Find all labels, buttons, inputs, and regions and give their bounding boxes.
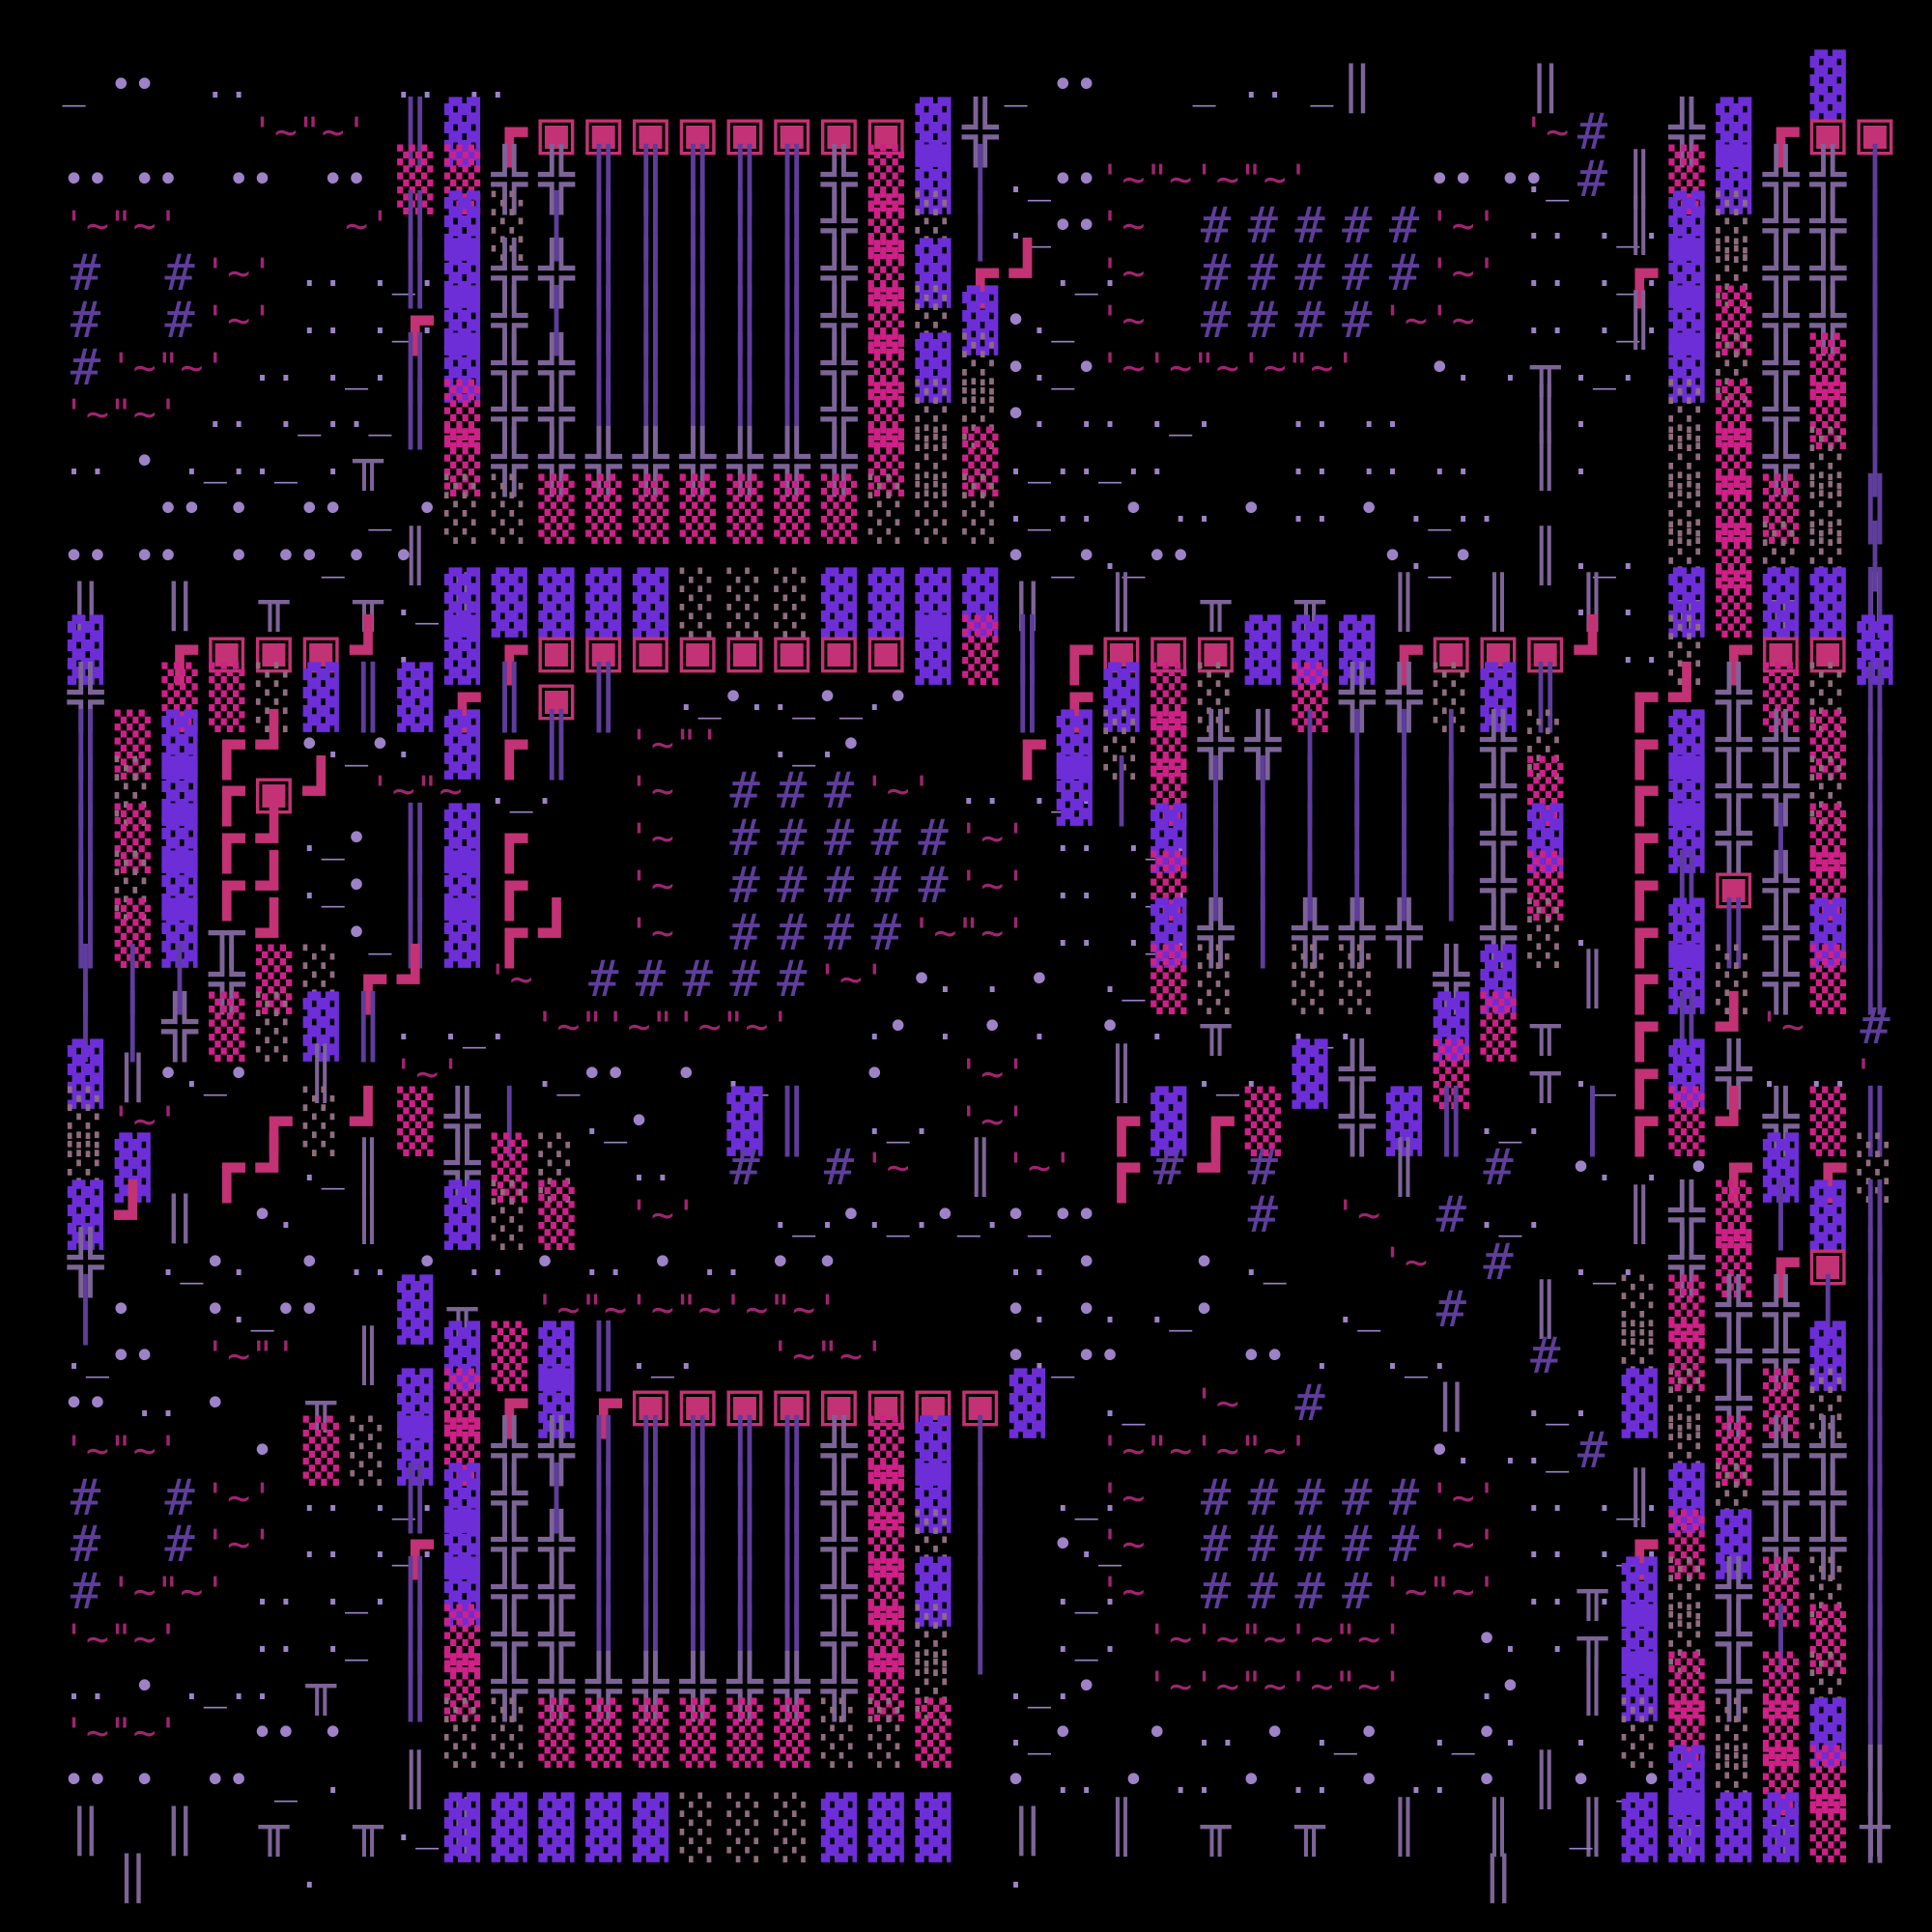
medium-dot-block-icon: ▒ xyxy=(674,486,722,533)
maze-box-icon: ▣ xyxy=(722,627,769,674)
underscore-glyph: _ xyxy=(1498,1098,1522,1146)
tick-glyph: ' xyxy=(863,768,887,815)
underscore-glyph: _ xyxy=(556,1051,581,1098)
double-tick-glyph: " xyxy=(109,203,133,250)
small-dot-glyph: . xyxy=(1592,1145,1616,1192)
small-dot-glyph: . xyxy=(1498,1428,1522,1475)
sparse-dot-block-icon: ░ xyxy=(1333,956,1380,1004)
small-dot-glyph: . xyxy=(321,1616,345,1663)
dot-glyph: • xyxy=(203,1380,227,1428)
small-dot-glyph: . xyxy=(1616,580,1640,627)
small-dot-glyph: . xyxy=(1380,439,1405,486)
small-dot-glyph: . xyxy=(1287,486,1311,533)
pink-corner-icon: ┏ xyxy=(203,1145,250,1192)
wave-glyph: ~ xyxy=(509,956,533,1004)
underscore-glyph: _ xyxy=(1592,345,1616,392)
underscore-glyph: _ xyxy=(203,1663,227,1711)
wave-glyph: ~ xyxy=(227,250,251,298)
tee-bar-icon: ╥ xyxy=(250,1804,298,1852)
double-tick-glyph: " xyxy=(109,1710,133,1757)
dot-glyph: • xyxy=(109,1333,133,1380)
dot-glyph: • xyxy=(1122,486,1146,533)
small-dot-glyph: . xyxy=(1546,250,1570,298)
dot-glyph: • xyxy=(227,156,251,204)
dot-glyph: • xyxy=(604,1051,628,1098)
small-dot-glyph: . xyxy=(1004,439,1028,486)
hash-glyph: # xyxy=(722,863,769,910)
dense-dot-block-icon: ▓ xyxy=(391,674,439,722)
dot-glyph: • xyxy=(227,1757,251,1804)
tick-glyph: ' xyxy=(1428,1521,1452,1569)
medium-dot-block-icon: ▒ xyxy=(203,1004,250,1051)
tick-glyph: ' xyxy=(62,1710,86,1757)
small-dot-glyph: . xyxy=(156,1380,181,1428)
small-dot-glyph: . xyxy=(203,391,227,439)
hash-glyph: # xyxy=(1287,1521,1334,1569)
tick-glyph: ' xyxy=(273,1333,298,1380)
wave-glyph: ~ xyxy=(1122,345,1146,392)
dense-dot-block-icon: ▓ xyxy=(580,1804,627,1852)
tick-glyph: ' xyxy=(627,722,651,769)
small-dot-glyph: . xyxy=(1546,1569,1570,1616)
tick-glyph: ' xyxy=(62,1428,86,1475)
dot-glyph: • xyxy=(1357,486,1381,533)
wave-glyph: ~ xyxy=(1451,1521,1475,1569)
small-dot-glyph: . xyxy=(1027,298,1051,345)
wave-glyph: ~ xyxy=(650,815,674,863)
tick-glyph: ' xyxy=(956,1051,980,1098)
small-dot-glyph: . xyxy=(1428,439,1452,486)
hash-glyph: # xyxy=(1287,298,1334,345)
tick-glyph: ' xyxy=(1287,1663,1311,1711)
small-dot-glyph: . xyxy=(1122,439,1146,486)
underscore-glyph: _ xyxy=(1451,1710,1475,1757)
dot-glyph: • xyxy=(815,674,839,722)
dot-glyph: • xyxy=(345,156,369,204)
wave-glyph: ~ xyxy=(556,1004,581,1051)
small-dot-glyph: . xyxy=(62,1663,86,1711)
small-dot-glyph: . xyxy=(1287,391,1311,439)
dot-glyph: • xyxy=(203,1287,227,1334)
wave-glyph: ~ xyxy=(132,1616,156,1663)
small-dot-glyph: . xyxy=(227,1239,251,1287)
small-dot-glyph: . xyxy=(674,674,698,722)
small-dot-glyph: . xyxy=(1027,345,1051,392)
hash-glyph: # xyxy=(674,956,722,1004)
small-dot-glyph: . xyxy=(1592,1521,1616,1569)
small-dot-glyph: . xyxy=(132,1380,156,1428)
small-dot-glyph: . xyxy=(1145,1287,1169,1334)
pink-corner-icon: ┛ xyxy=(109,1192,156,1239)
hash-glyph: # xyxy=(815,815,863,863)
underscore-glyph: _ xyxy=(1428,486,1452,533)
dot-glyph: • xyxy=(273,1287,298,1334)
tick-glyph: ' xyxy=(1239,345,1264,392)
small-dot-glyph: . xyxy=(1027,1287,1051,1334)
wave-glyph: ~ xyxy=(1169,345,1193,392)
small-dot-glyph: . xyxy=(391,580,415,627)
dot-glyph: • xyxy=(227,533,251,581)
small-dot-glyph: . xyxy=(580,1098,604,1146)
small-dot-glyph: . xyxy=(1521,1380,1546,1428)
wave-glyph: ~ xyxy=(697,1287,722,1334)
tick-glyph: ' xyxy=(250,109,274,156)
double-bar-icon: ║ xyxy=(1521,1757,1569,1804)
medium-dot-block-icon: ▒ xyxy=(674,1710,722,1757)
small-dot-glyph: . xyxy=(1592,203,1616,250)
wave-glyph: ~ xyxy=(1357,1192,1381,1239)
dot-glyph: • xyxy=(250,1192,274,1239)
maze-box-icon: ▣ xyxy=(768,627,815,674)
short-double-bar-icon: ‖ xyxy=(109,1852,156,1899)
dot-glyph: • xyxy=(85,1380,109,1428)
dense-dot-block-icon: ▓ xyxy=(1004,1380,1051,1428)
small-dot-glyph: . xyxy=(1051,1757,1075,1804)
tick-glyph: ' xyxy=(203,345,227,392)
tick-glyph: ' xyxy=(956,1098,980,1146)
hash-glyph: # xyxy=(768,956,815,1004)
small-dot-glyph: . xyxy=(180,1051,204,1098)
dot-glyph: • xyxy=(109,1287,133,1334)
sparse-dot-block-icon: ░ xyxy=(298,1098,345,1146)
small-dot-glyph: . xyxy=(1051,1475,1075,1522)
thin-bar-icon: │ xyxy=(956,1616,1004,1663)
hash-glyph: # xyxy=(815,1145,863,1192)
sparse-dot-block-icon: ░ xyxy=(863,486,910,533)
tick-glyph: ' xyxy=(627,768,651,815)
double-bar-icon: ║ xyxy=(1569,956,1616,1004)
wave-glyph: ~ xyxy=(1451,250,1475,298)
wave-glyph: ~ xyxy=(838,956,863,1004)
double-bar-icon: ║ xyxy=(345,674,392,722)
dot-glyph: • xyxy=(273,1710,298,1757)
short-double-bar-icon: ‖ xyxy=(156,1192,204,1239)
small-dot-glyph: . xyxy=(1569,1710,1593,1757)
dot-glyph: • xyxy=(886,1004,910,1051)
tick-glyph: ' xyxy=(203,1569,227,1616)
small-dot-glyph: . xyxy=(1451,345,1475,392)
tee-bar-icon: ╥ xyxy=(298,1663,345,1711)
hash-glyph: # xyxy=(1380,250,1428,298)
underscore-glyph: _ xyxy=(85,1333,109,1380)
small-dot-glyph: . xyxy=(321,439,345,486)
hash-glyph: # xyxy=(156,1521,204,1569)
small-dot-glyph: . xyxy=(980,768,1005,815)
sparse-dot-block-icon: ░ xyxy=(1287,956,1334,1004)
small-dot-glyph: . xyxy=(910,1192,934,1239)
small-dot-glyph: . xyxy=(1521,1428,1546,1475)
underscore-glyph: _ xyxy=(1404,1333,1428,1380)
tick-glyph: ' xyxy=(368,768,392,815)
hash-glyph: # xyxy=(910,863,957,910)
tick-glyph: ' xyxy=(1098,345,1122,392)
dot-glyph: • xyxy=(1498,156,1522,204)
small-dot-glyph: . xyxy=(273,1616,298,1663)
dense-dot-block-icon: ▓ xyxy=(627,1804,674,1852)
tick-glyph: ' xyxy=(109,1569,133,1616)
hash-glyph: # xyxy=(1333,1569,1380,1616)
underscore-glyph: _ xyxy=(1004,62,1028,109)
small-dot-glyph: . xyxy=(1192,1710,1216,1757)
medium-dot-block-icon: ▒ xyxy=(1804,956,1852,1004)
sparse-dot-block-icon: ░ xyxy=(1192,956,1239,1004)
dot-glyph: • xyxy=(203,1757,227,1804)
tick-glyph: ' xyxy=(1098,1475,1122,1522)
tick-glyph: ' xyxy=(1380,1663,1405,1711)
wave-glyph: ~ xyxy=(1780,1004,1804,1051)
dot-glyph: • xyxy=(1098,1004,1122,1051)
wave-glyph: ~ xyxy=(650,1287,674,1334)
double-bar-icon: ║ xyxy=(768,1098,815,1146)
small-dot-glyph: . xyxy=(863,674,887,722)
hash-glyph: # xyxy=(1569,156,1616,204)
dot-glyph: • xyxy=(1569,1757,1593,1804)
small-dot-glyph: . xyxy=(486,1004,510,1051)
tick-glyph: ' xyxy=(1192,156,1216,204)
tick-glyph: ' xyxy=(1192,1380,1216,1428)
dot-glyph: • xyxy=(1074,62,1098,109)
small-dot-glyph: . xyxy=(203,62,227,109)
double-bar-icon: ║ xyxy=(391,391,439,439)
small-dot-glyph: . xyxy=(298,1145,322,1192)
small-dot-glyph: . xyxy=(697,1239,722,1287)
dense-dot-block-icon: ▓ xyxy=(439,722,486,769)
small-dot-glyph: . xyxy=(1521,1098,1546,1146)
tee-bar-icon: ╥ xyxy=(1521,1051,1569,1098)
short-double-bar-icon: ‖ xyxy=(109,1051,156,1098)
small-dot-glyph: . xyxy=(1074,815,1098,863)
hash-glyph: # xyxy=(1239,1145,1287,1192)
underscore-glyph: _ xyxy=(838,674,863,722)
dot-glyph: • xyxy=(1263,1710,1287,1757)
wave-glyph: ~ xyxy=(132,1428,156,1475)
small-dot-glyph: . xyxy=(273,391,298,439)
hash-glyph: # xyxy=(1239,203,1287,250)
wave-glyph: ~ xyxy=(1122,203,1146,250)
hash-glyph: # xyxy=(768,815,815,863)
double-tick-glyph: " xyxy=(1145,1428,1169,1475)
double-tick-glyph: " xyxy=(1239,1428,1264,1475)
small-dot-glyph: . xyxy=(1051,1663,1075,1711)
dot-glyph: • xyxy=(321,486,345,533)
small-dot-glyph: . xyxy=(863,1004,887,1051)
underscore-glyph: _ xyxy=(180,1239,204,1287)
dot-glyph: • xyxy=(1451,533,1475,581)
hash-glyph: # xyxy=(62,1569,109,1616)
wave-glyph: ~ xyxy=(1451,1475,1475,1522)
wave-glyph: ~ xyxy=(1263,1663,1287,1711)
tick-glyph: ' xyxy=(203,1475,227,1522)
small-dot-glyph: . xyxy=(368,298,392,345)
tee-bar-icon: ╥ xyxy=(1521,345,1569,392)
underscore-glyph: _ xyxy=(462,1004,486,1051)
small-dot-glyph: . xyxy=(1051,815,1075,863)
dot-glyph: • xyxy=(838,722,863,769)
double-tick-glyph: " xyxy=(109,1616,133,1663)
small-dot-glyph: . xyxy=(1169,1757,1193,1804)
underscore-glyph: _ xyxy=(697,674,722,722)
small-dot-glyph: . xyxy=(1004,156,1028,204)
sparse-dot-block-icon: ░ xyxy=(345,1428,392,1475)
dot-glyph: • xyxy=(1074,1663,1098,1711)
underscore-glyph: _ xyxy=(321,863,345,910)
wave-glyph: ~ xyxy=(1310,345,1334,392)
wave-glyph: ~ xyxy=(745,1004,769,1051)
small-dot-glyph: . xyxy=(1074,391,1098,439)
small-dot-glyph: . xyxy=(1098,1287,1122,1334)
tick-glyph: ' xyxy=(815,956,839,1004)
underscore-glyph: _ xyxy=(1310,62,1334,109)
tick-glyph: ' xyxy=(368,203,392,250)
hash-glyph: # xyxy=(62,250,109,298)
medium-dot-block-icon: ▒ xyxy=(533,1192,581,1239)
sparse-dot-block-icon: ░ xyxy=(250,1004,298,1051)
tick-glyph: ' xyxy=(203,250,227,298)
small-dot-glyph: . xyxy=(1569,910,1593,957)
small-dot-glyph: . xyxy=(604,1239,628,1287)
dot-glyph: • xyxy=(109,62,133,109)
wave-glyph: ~ xyxy=(1546,109,1570,156)
thin-bar-icon: │ xyxy=(109,1004,156,1051)
double-tick-glyph: " xyxy=(1428,1569,1452,1616)
dot-glyph: • xyxy=(368,722,392,769)
wave-glyph: ~ xyxy=(980,910,1005,957)
small-dot-glyph: . xyxy=(368,1521,392,1569)
hash-glyph: # xyxy=(1239,1475,1287,1522)
small-dot-glyph: . xyxy=(1098,391,1122,439)
hash-glyph: # xyxy=(722,1145,769,1192)
tick-glyph: ' xyxy=(1004,910,1028,957)
small-dot-glyph: . xyxy=(321,1757,345,1804)
hash-glyph: # xyxy=(815,863,863,910)
dot-glyph: • xyxy=(298,1239,322,1287)
tee-bar-icon: ╥ xyxy=(1569,1569,1616,1616)
dot-glyph: • xyxy=(1428,156,1452,204)
double-tick-glyph: " xyxy=(956,910,980,957)
dense-dot-block-icon: ▓ xyxy=(391,1287,439,1334)
tick-glyph: ' xyxy=(250,250,274,298)
double-bar-icon: ║ xyxy=(1098,1804,1146,1852)
underscore-glyph: _ xyxy=(1169,1287,1193,1334)
tick-glyph: ' xyxy=(1098,1569,1122,1616)
double-tick-glyph: " xyxy=(298,109,322,156)
dot-glyph: • xyxy=(1239,1333,1264,1380)
tick-glyph: ' xyxy=(1051,1145,1075,1192)
sparse-dot-block-icon: ░ xyxy=(815,1710,863,1757)
dot-glyph: • xyxy=(1239,486,1264,533)
small-dot-glyph: . xyxy=(1098,533,1122,581)
tick-glyph: ' xyxy=(674,1192,698,1239)
dense-dot-block-icon: ▓ xyxy=(1616,1380,1663,1428)
wave-glyph: ~ xyxy=(227,1521,251,1569)
hash-glyph: # xyxy=(722,910,769,957)
wave-glyph: ~ xyxy=(980,1051,1005,1098)
dot-glyph: • xyxy=(250,1710,274,1757)
dot-glyph: • xyxy=(1475,1616,1499,1663)
pink-corner-icon: ┛ xyxy=(1004,250,1051,298)
tick-glyph: ' xyxy=(1380,1569,1405,1616)
medium-dot-block-icon: ▒ xyxy=(298,1428,345,1475)
hash-glyph: # xyxy=(815,910,863,957)
dot-glyph: • xyxy=(1074,1333,1098,1380)
thin-bar-icon: │ xyxy=(1239,910,1287,957)
underscore-glyph: _ xyxy=(1122,533,1146,581)
dot-glyph: • xyxy=(1004,1192,1028,1239)
underscore-glyph: _ xyxy=(1546,1428,1570,1475)
wave-glyph: ~ xyxy=(1263,345,1287,392)
tick-glyph: ' xyxy=(203,1521,227,1569)
underscore-glyph: _ xyxy=(1074,1569,1098,1616)
small-dot-glyph: . xyxy=(1521,1521,1546,1569)
dense-dot-block-icon: ▓ xyxy=(1663,1804,1711,1852)
small-dot-glyph: . xyxy=(1592,298,1616,345)
small-dot-glyph: . xyxy=(227,439,251,486)
dense-dot-block-icon: ▓ xyxy=(910,627,957,674)
hash-glyph: # xyxy=(1380,1521,1428,1569)
tick-glyph: ' xyxy=(674,1004,698,1051)
hash-glyph: # xyxy=(1333,298,1380,345)
dot-glyph: • xyxy=(1357,1757,1381,1804)
small-dot-glyph: . xyxy=(1546,1521,1570,1569)
double-tick-glyph: " xyxy=(580,1004,604,1051)
tick-glyph: ' xyxy=(697,722,722,769)
dot-glyph: • xyxy=(62,533,86,581)
tick-glyph: ' xyxy=(1145,1616,1169,1663)
underscore-glyph: _ xyxy=(1074,1475,1098,1522)
small-dot-glyph: . xyxy=(227,62,251,109)
double-bar-icon: ║ xyxy=(1380,1145,1428,1192)
wave-glyph: ~ xyxy=(1263,1616,1287,1663)
small-dot-glyph: . xyxy=(1239,1239,1264,1287)
small-dot-glyph: . xyxy=(1169,486,1193,533)
small-dot-glyph: . xyxy=(1475,486,1499,533)
pink-corner-icon: ┏ xyxy=(1616,1098,1663,1146)
small-dot-glyph: . xyxy=(321,1475,345,1522)
medium-dot-block-icon: ▒ xyxy=(391,1098,439,1146)
underscore-glyph: _ xyxy=(298,391,322,439)
tick-glyph: ' xyxy=(1098,203,1122,250)
small-dot-glyph: . xyxy=(391,1004,415,1051)
wave-glyph: ~ xyxy=(132,1710,156,1757)
wave-glyph: ~ xyxy=(1451,298,1475,345)
wave-glyph: ~ xyxy=(227,1475,251,1522)
double-tick-glyph: " xyxy=(722,1004,746,1051)
tee-bar-icon: ╥ xyxy=(345,1804,392,1852)
wave-glyph: ~ xyxy=(886,1145,910,1192)
ascii-art-canvas: _••......_••_.._‖‖▓'~"~'║▓┏▣▣▣▣▣▣▣▣▓╬'~#… xyxy=(0,0,1932,1932)
tick-glyph: ' xyxy=(156,1710,181,1757)
underscore-glyph: _ xyxy=(1122,956,1146,1004)
underscore-glyph: _ xyxy=(1169,391,1193,439)
small-dot-glyph: . xyxy=(368,1475,392,1522)
wave-glyph: ~ xyxy=(1215,1616,1239,1663)
small-dot-glyph: . xyxy=(1380,391,1405,439)
dot-glyph: • xyxy=(1074,203,1098,250)
hash-glyph: # xyxy=(1333,250,1380,298)
sparse-dot-block-icon: ░ xyxy=(1521,910,1569,957)
underscore-glyph: _ xyxy=(956,1192,980,1239)
double-tick-glyph: " xyxy=(1239,1663,1264,1711)
maze-box-icon: ▣ xyxy=(627,627,674,674)
double-bar-icon: ║ xyxy=(345,1333,392,1380)
dot-glyph: • xyxy=(1004,391,1028,439)
wave-glyph: ~ xyxy=(697,1004,722,1051)
short-double-bar-icon: ‖ xyxy=(1521,62,1569,109)
wave-glyph: ~ xyxy=(1451,203,1475,250)
tick-glyph: ' xyxy=(109,345,133,392)
wave-glyph: ~ xyxy=(132,1569,156,1616)
sparse-dot-block-icon: ░ xyxy=(1616,1710,1663,1757)
